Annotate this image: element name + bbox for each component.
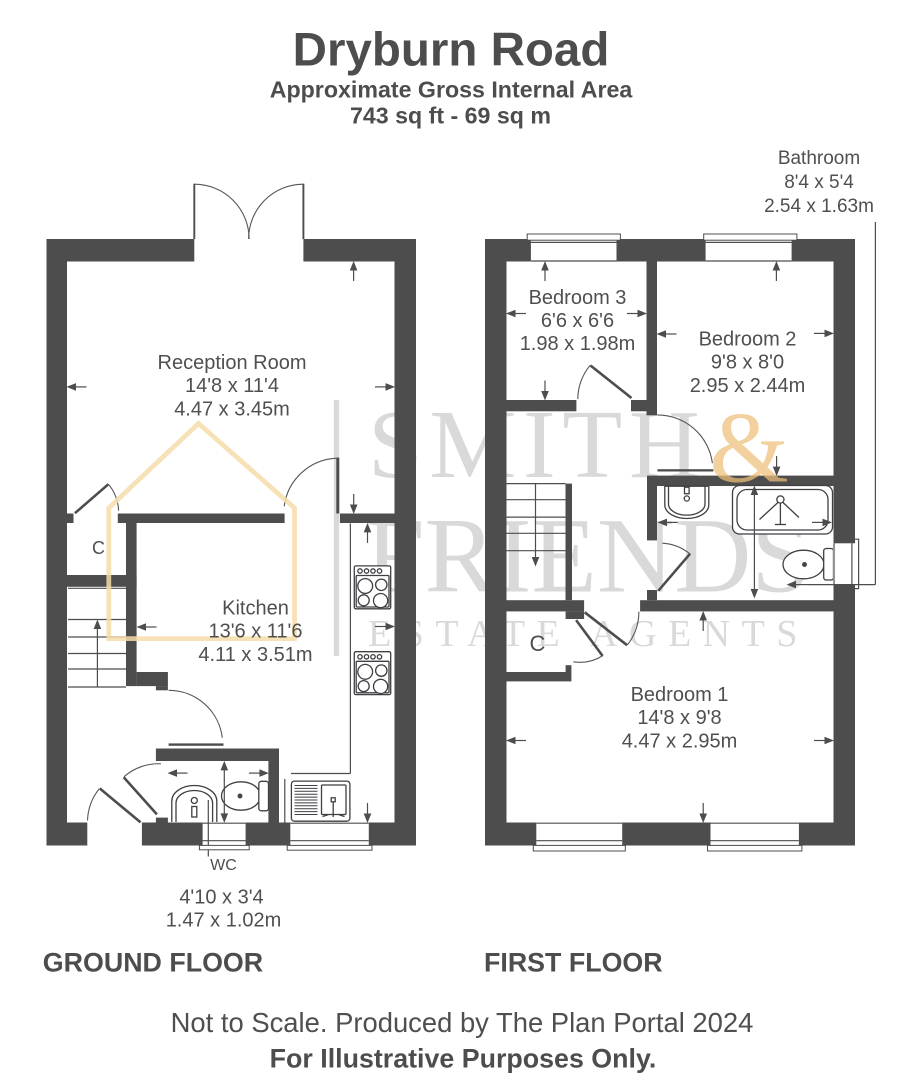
- svg-text:4'10 x 3'4: 4'10 x 3'4: [179, 887, 263, 909]
- svg-text:Bedroom 2: Bedroom 2: [699, 329, 797, 351]
- svg-text:4.11 x 3.51m: 4.11 x 3.51m: [198, 644, 312, 666]
- svg-text:C: C: [92, 538, 105, 558]
- svg-text:1.47 x 1.02m: 1.47 x 1.02m: [166, 910, 282, 932]
- svg-text:4.47 x 3.45m: 4.47 x 3.45m: [174, 398, 290, 420]
- svg-text:For Illustrative Purposes Only: For Illustrative Purposes Only.: [270, 1044, 657, 1074]
- svg-text:Kitchen: Kitchen: [222, 598, 289, 620]
- svg-text:14'8 x 9'8: 14'8 x 9'8: [637, 707, 721, 729]
- svg-text:8'4 x 5'4: 8'4 x 5'4: [784, 172, 854, 193]
- svg-text:Approximate Gross Internal Are: Approximate Gross Internal Area: [270, 76, 634, 102]
- svg-text:14'8 x 11'4: 14'8 x 11'4: [185, 375, 279, 397]
- svg-text:9'8 x 8'0: 9'8 x 8'0: [711, 352, 784, 374]
- svg-text:743 sq ft - 69 sq m: 743 sq ft - 69 sq m: [350, 102, 551, 128]
- svg-text:FIRST FLOOR: FIRST FLOOR: [484, 947, 663, 977]
- svg-text:Bedroom 3: Bedroom 3: [529, 287, 627, 309]
- svg-text:GROUND FLOOR: GROUND FLOOR: [43, 947, 263, 977]
- svg-text:C: C: [530, 631, 546, 656]
- svg-text:1.98 x 1.98m: 1.98 x 1.98m: [520, 333, 636, 355]
- svg-text:4.47 x 2.95m: 4.47 x 2.95m: [622, 730, 738, 752]
- svg-text:WC: WC: [210, 857, 237, 874]
- svg-text:Bathroom: Bathroom: [778, 148, 860, 169]
- svg-text:2.54 x 1.63m: 2.54 x 1.63m: [764, 196, 874, 217]
- svg-text:ESTATE AGENTS: ESTATE AGENTS: [368, 613, 809, 655]
- svg-text:Bedroom 1: Bedroom 1: [631, 684, 729, 706]
- svg-text:Reception Room: Reception Room: [158, 352, 307, 374]
- svg-text:6'6 x 6'6: 6'6 x 6'6: [541, 310, 614, 332]
- svg-text:Dryburn Road: Dryburn Road: [293, 24, 610, 77]
- svg-text:&: &: [709, 392, 788, 505]
- svg-text:2.95 x 2.44m: 2.95 x 2.44m: [690, 375, 806, 397]
- svg-text:13'6 x 11'6: 13'6 x 11'6: [208, 621, 302, 643]
- svg-text:Not to Scale. Produced by The: Not to Scale. Produced by The Plan Porta…: [171, 1007, 754, 1038]
